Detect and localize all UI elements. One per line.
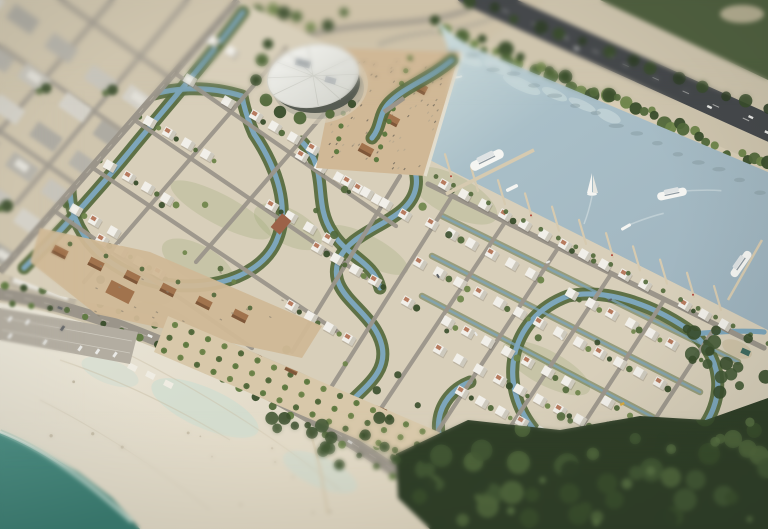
vignette-overlay	[0, 0, 768, 529]
aerial-render-image	[0, 0, 768, 529]
render-canvas	[0, 0, 768, 529]
